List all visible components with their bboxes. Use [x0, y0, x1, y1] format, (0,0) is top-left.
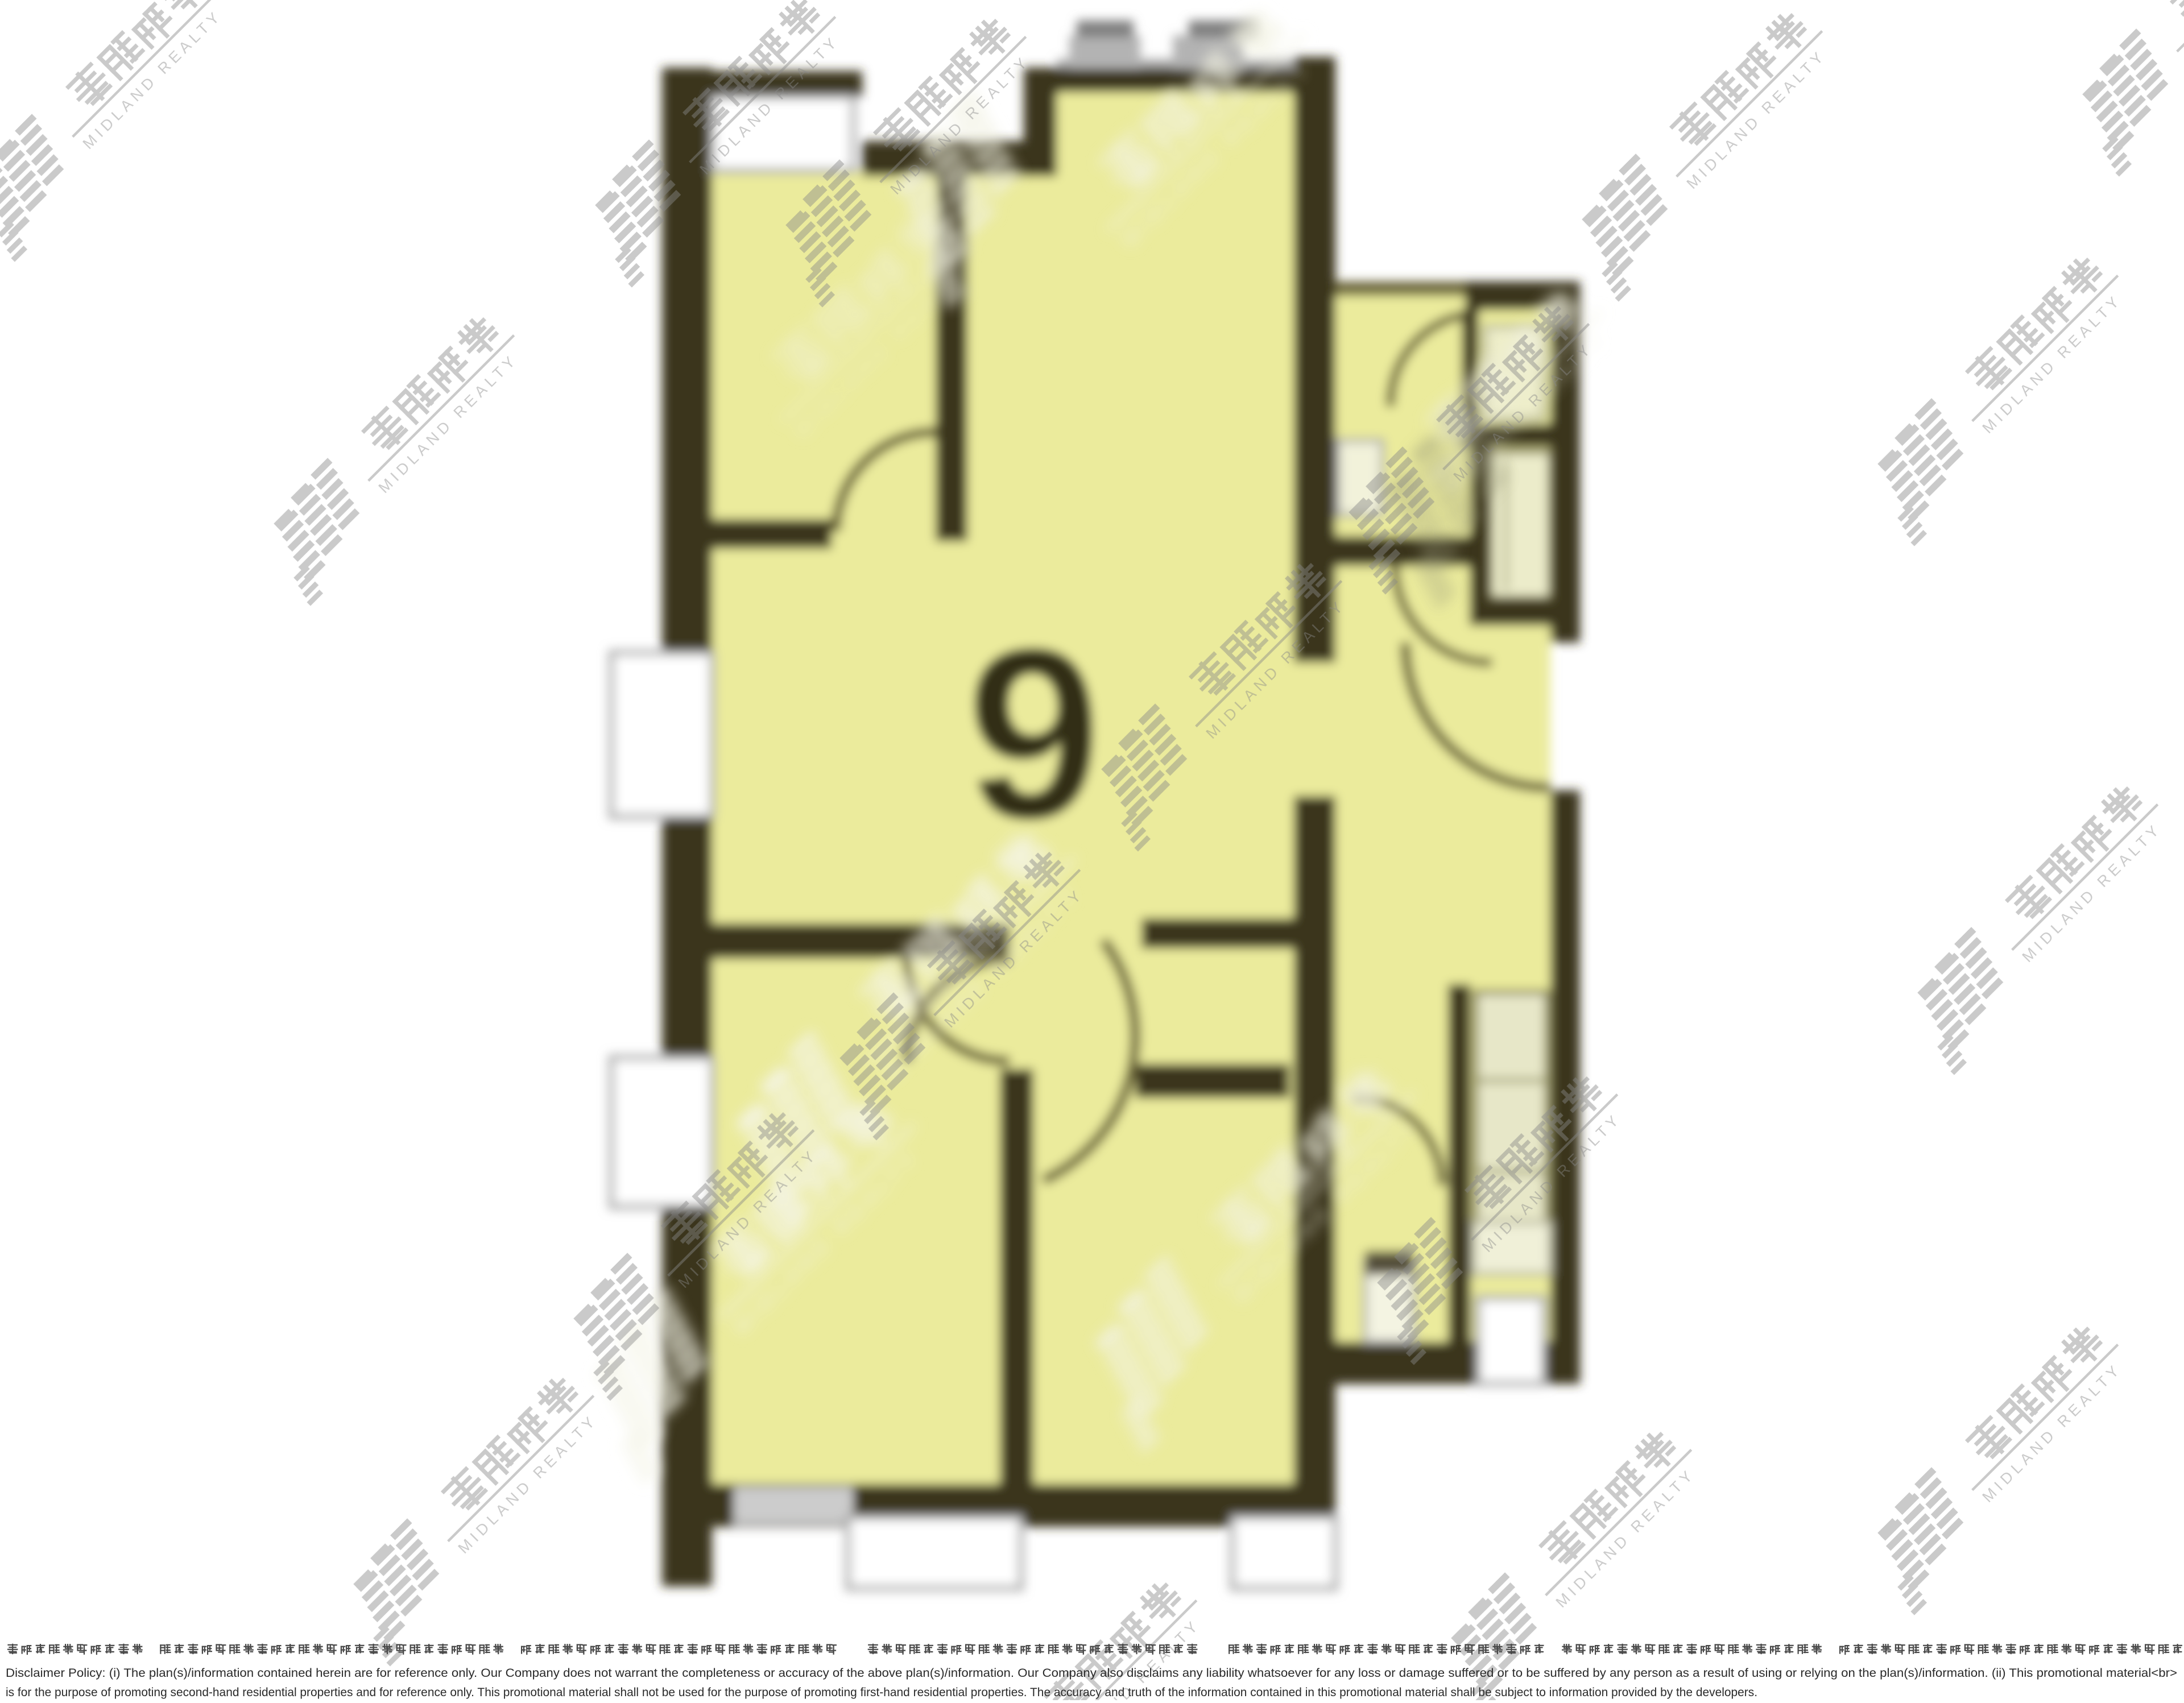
svg-text:is for the purpose of promotin: is for the purpose of promoting second-h… [6, 1685, 1757, 1699]
svg-text:Disclaimer Policy: (i) The pla: Disclaimer Policy: (i) The plan(s)/infor… [6, 1666, 2177, 1680]
svg-text:9: 9 [966, 598, 1102, 869]
